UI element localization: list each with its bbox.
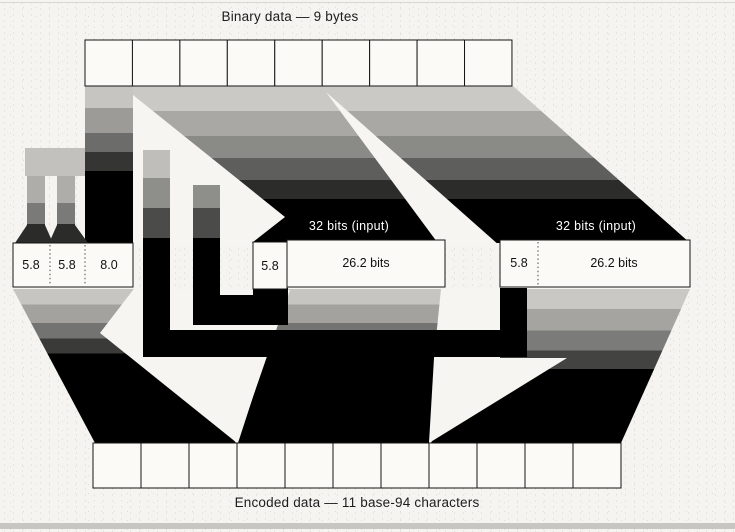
leftover-cell-1: 5.8	[22, 258, 39, 272]
char-cell	[573, 443, 621, 488]
scan-stripe-bottom	[0, 523, 735, 529]
char-cell	[141, 443, 189, 488]
quotient-value-right: 26.2 bits	[590, 256, 637, 270]
char-cell	[525, 443, 573, 488]
byte-cell	[275, 40, 322, 86]
char-cell	[477, 443, 525, 488]
byte-cell	[322, 40, 369, 86]
funnel-left	[15, 176, 53, 243]
char-cell	[333, 443, 381, 488]
header-32bits-right: 32 bits (input)	[556, 219, 636, 233]
byte-cell	[132, 40, 179, 86]
char-cell	[237, 443, 285, 488]
scan-line-top	[0, 2, 735, 3]
group-32bit-right: 5.8 26.2 bits	[500, 240, 690, 287]
char-cell	[285, 443, 333, 488]
remainder-value-middle: 5.8	[261, 259, 278, 273]
byte-cell	[370, 40, 417, 86]
group-32bit-middle: 5.8 26.2 bits	[253, 240, 445, 289]
byte-cell	[85, 40, 132, 86]
bottom-caption: Encoded data — 11 base-94 characters	[235, 495, 480, 510]
byte-cell	[465, 40, 512, 86]
top-caption: Binary data — 9 bytes	[221, 9, 358, 24]
char-cell	[381, 443, 429, 488]
char-cell	[429, 443, 477, 488]
binary-byte-row	[85, 40, 512, 86]
char-cell	[189, 443, 237, 488]
quotient-value-middle: 26.2 bits	[342, 256, 389, 270]
encoded-char-row	[93, 443, 621, 488]
byte-cell	[227, 40, 274, 86]
char-cell	[93, 443, 141, 488]
leftover-cell-2: 5.8	[58, 258, 75, 272]
funnel-middle	[49, 176, 88, 243]
leftover-cell-3: 8.0	[100, 258, 117, 272]
remainder-value-right: 5.8	[510, 256, 527, 270]
byte-cell	[417, 40, 464, 86]
encoding-diagram: 32 bits (input) 32 bits (input) 5.8 5.8 …	[0, 0, 735, 532]
group-leftover: 5.8 5.8 8.0	[13, 243, 133, 287]
byte-cell	[180, 40, 227, 86]
band-byte-to-8bits	[85, 86, 133, 243]
header-32bits-middle: 32 bits (input)	[309, 219, 389, 233]
scanned-figure-page: 32 bits (input) 32 bits (input) 5.8 5.8 …	[0, 0, 735, 532]
